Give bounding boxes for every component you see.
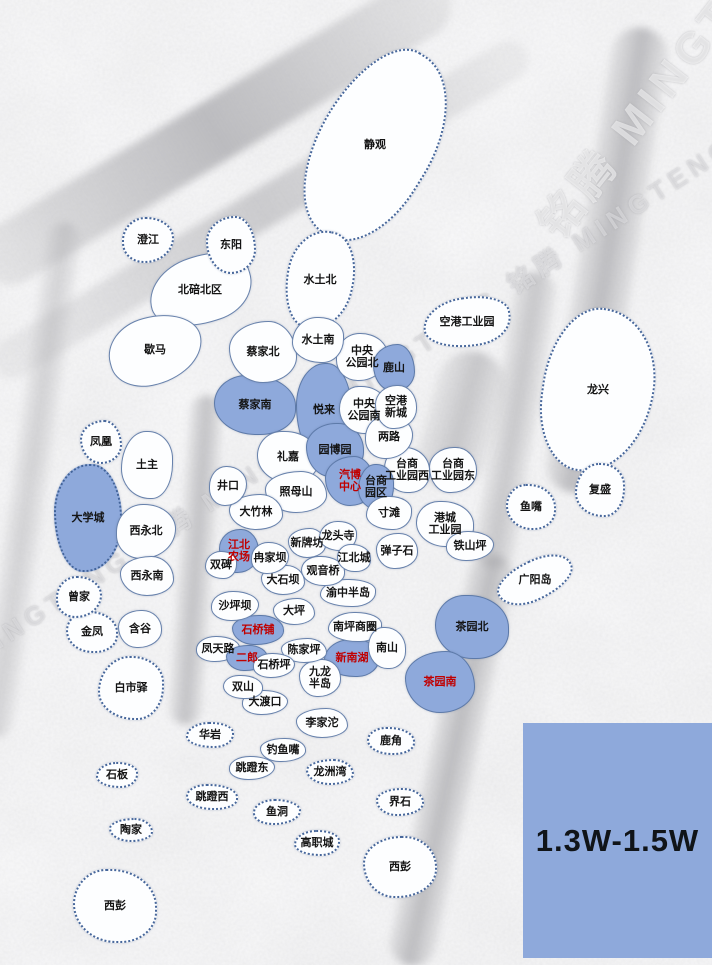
- map-region-label: 鱼洞: [253, 799, 301, 825]
- map-region: 大坪: [273, 598, 315, 625]
- map-region-label: 白市驿: [98, 656, 164, 720]
- map-region-label: 铁山坪: [446, 531, 494, 561]
- map-region: 凤凰: [80, 420, 122, 464]
- map-region-label: 凤凰: [80, 420, 122, 464]
- map-region-label: 石桥坪: [253, 653, 295, 678]
- map-region: 水土北: [286, 230, 354, 330]
- map-region-label: 弹子石: [376, 533, 418, 569]
- map-region: 江北城: [337, 544, 371, 572]
- map-region: 寸滩: [366, 496, 412, 530]
- map-region: 西彭: [363, 836, 437, 898]
- map-region: 茶园北: [435, 595, 509, 659]
- map-region: 茶园南: [405, 651, 475, 713]
- map-region-label: 鱼嘴: [506, 484, 556, 530]
- map-region-label: 东阳: [206, 216, 256, 274]
- map-region-label: 冉家坝: [251, 542, 289, 574]
- map-region-label: 水土北: [286, 230, 354, 330]
- map-region: 石桥坪: [253, 653, 295, 678]
- map-region-label: 西彭: [363, 836, 437, 898]
- map-region: 双碑: [205, 551, 237, 579]
- map-region: 鹿角: [367, 727, 415, 755]
- map-region-label: 龙洲湾: [306, 759, 354, 785]
- map-region: 铁山坪: [446, 531, 494, 561]
- map-region: 空港工业园: [423, 297, 511, 347]
- map-region: 歇马: [108, 316, 203, 384]
- map-region: 龙兴: [542, 308, 654, 473]
- map-canvas: 铭腾 MINGTENG MINGTENG 铭腾 MINGTENG MINGTEN…: [0, 0, 712, 965]
- map-region: 龙洲湾: [306, 759, 354, 785]
- map-region: 沙坪坝: [211, 591, 259, 621]
- map-region: 白市驿: [98, 656, 164, 720]
- map-region-label: 台商 工业园东: [429, 447, 477, 493]
- map-region: 水土南: [292, 317, 344, 363]
- map-region-label: 华岩: [186, 722, 234, 748]
- map-region: 跳蹬东: [229, 756, 275, 780]
- legend-price-range: 1.3W-1.5W: [523, 723, 712, 958]
- map-region-label: 茶园北: [435, 595, 509, 659]
- legend-price-label: 1.3W-1.5W: [536, 823, 699, 859]
- map-region: 陶家: [109, 818, 153, 842]
- map-region: 高职城: [294, 830, 340, 856]
- map-region-label: 寸滩: [366, 496, 412, 530]
- map-region-label: 李家沱: [296, 708, 348, 738]
- map-region: 跳蹬西: [186, 784, 238, 810]
- map-region-label: 茶园南: [405, 651, 475, 713]
- map-region-label: 井口: [209, 466, 247, 506]
- map-region-label: 鹿角: [367, 727, 415, 755]
- map-region: 曾家: [56, 576, 102, 618]
- map-region-label: 双碑: [205, 551, 237, 579]
- map-region-label: 静观: [318, 43, 433, 248]
- map-region-label: 沙坪坝: [211, 591, 259, 621]
- map-region-label: 西永南: [120, 556, 174, 596]
- map-region: 西永北: [116, 504, 176, 559]
- map-region: 石板: [96, 762, 138, 788]
- map-region-label: 跳蹬西: [186, 784, 238, 810]
- map-region-label: 土主: [121, 431, 173, 499]
- map-region-label: 大坪: [273, 598, 315, 625]
- map-region: 九龙 半岛: [299, 659, 341, 697]
- map-region: 静观: [318, 43, 433, 248]
- map-region-label: 陶家: [109, 818, 153, 842]
- map-region-label: 复盛: [575, 463, 625, 517]
- map-region: 冉家坝: [251, 542, 289, 574]
- map-region: 井口: [209, 466, 247, 506]
- map-region: 空港 新城: [375, 385, 417, 429]
- map-region-label: 江北城: [337, 544, 371, 572]
- map-region: 台商 工业园东: [429, 447, 477, 493]
- map-region-label: 澄江: [122, 217, 174, 263]
- map-region: 双山: [223, 675, 263, 699]
- map-region: 土主: [121, 431, 173, 499]
- map-region-label: 南山: [368, 627, 406, 669]
- map-region: 澄江: [122, 217, 174, 263]
- map-region-label: 蔡家南: [214, 375, 296, 435]
- map-region: 复盛: [575, 463, 625, 517]
- map-region: 华岩: [186, 722, 234, 748]
- map-region-label: 水土南: [292, 317, 344, 363]
- map-region-label: 空港 新城: [375, 385, 417, 429]
- map-region: 鱼嘴: [506, 484, 556, 530]
- map-region-label: 西彭: [73, 869, 157, 943]
- map-region: 大学城: [54, 464, 122, 572]
- map-region: 李家沱: [296, 708, 348, 738]
- map-region-label: 双山: [223, 675, 263, 699]
- map-region-label: 空港工业园: [423, 297, 511, 347]
- map-region: 西彭: [73, 869, 157, 943]
- map-region-label: 大学城: [54, 464, 122, 572]
- map-region: 南山: [368, 627, 406, 669]
- map-region-label: 西永北: [116, 504, 176, 559]
- map-region-label: 石板: [96, 762, 138, 788]
- map-region: 蔡家北: [229, 321, 297, 383]
- map-region: 蔡家南: [214, 375, 296, 435]
- map-region: 含谷: [118, 610, 162, 648]
- map-region: 东阳: [206, 216, 256, 274]
- map-region: 广阳岛: [495, 560, 575, 600]
- map-region-label: 曾家: [56, 576, 102, 618]
- map-region-label: 广阳岛: [495, 560, 575, 600]
- map-region-label: 蔡家北: [229, 321, 297, 383]
- map-region: 西永南: [120, 556, 174, 596]
- map-region-label: 龙兴: [542, 308, 654, 473]
- map-region-label: 九龙 半岛: [299, 659, 341, 697]
- map-region: 弹子石: [376, 533, 418, 569]
- map-region-label: 高职城: [294, 830, 340, 856]
- map-region-label: 跳蹬东: [229, 756, 275, 780]
- map-region: 界石: [376, 788, 424, 816]
- map-region-label: 歇马: [108, 316, 203, 384]
- map-region: 鱼洞: [253, 799, 301, 825]
- map-region-label: 含谷: [118, 610, 162, 648]
- map-region-label: 界石: [376, 788, 424, 816]
